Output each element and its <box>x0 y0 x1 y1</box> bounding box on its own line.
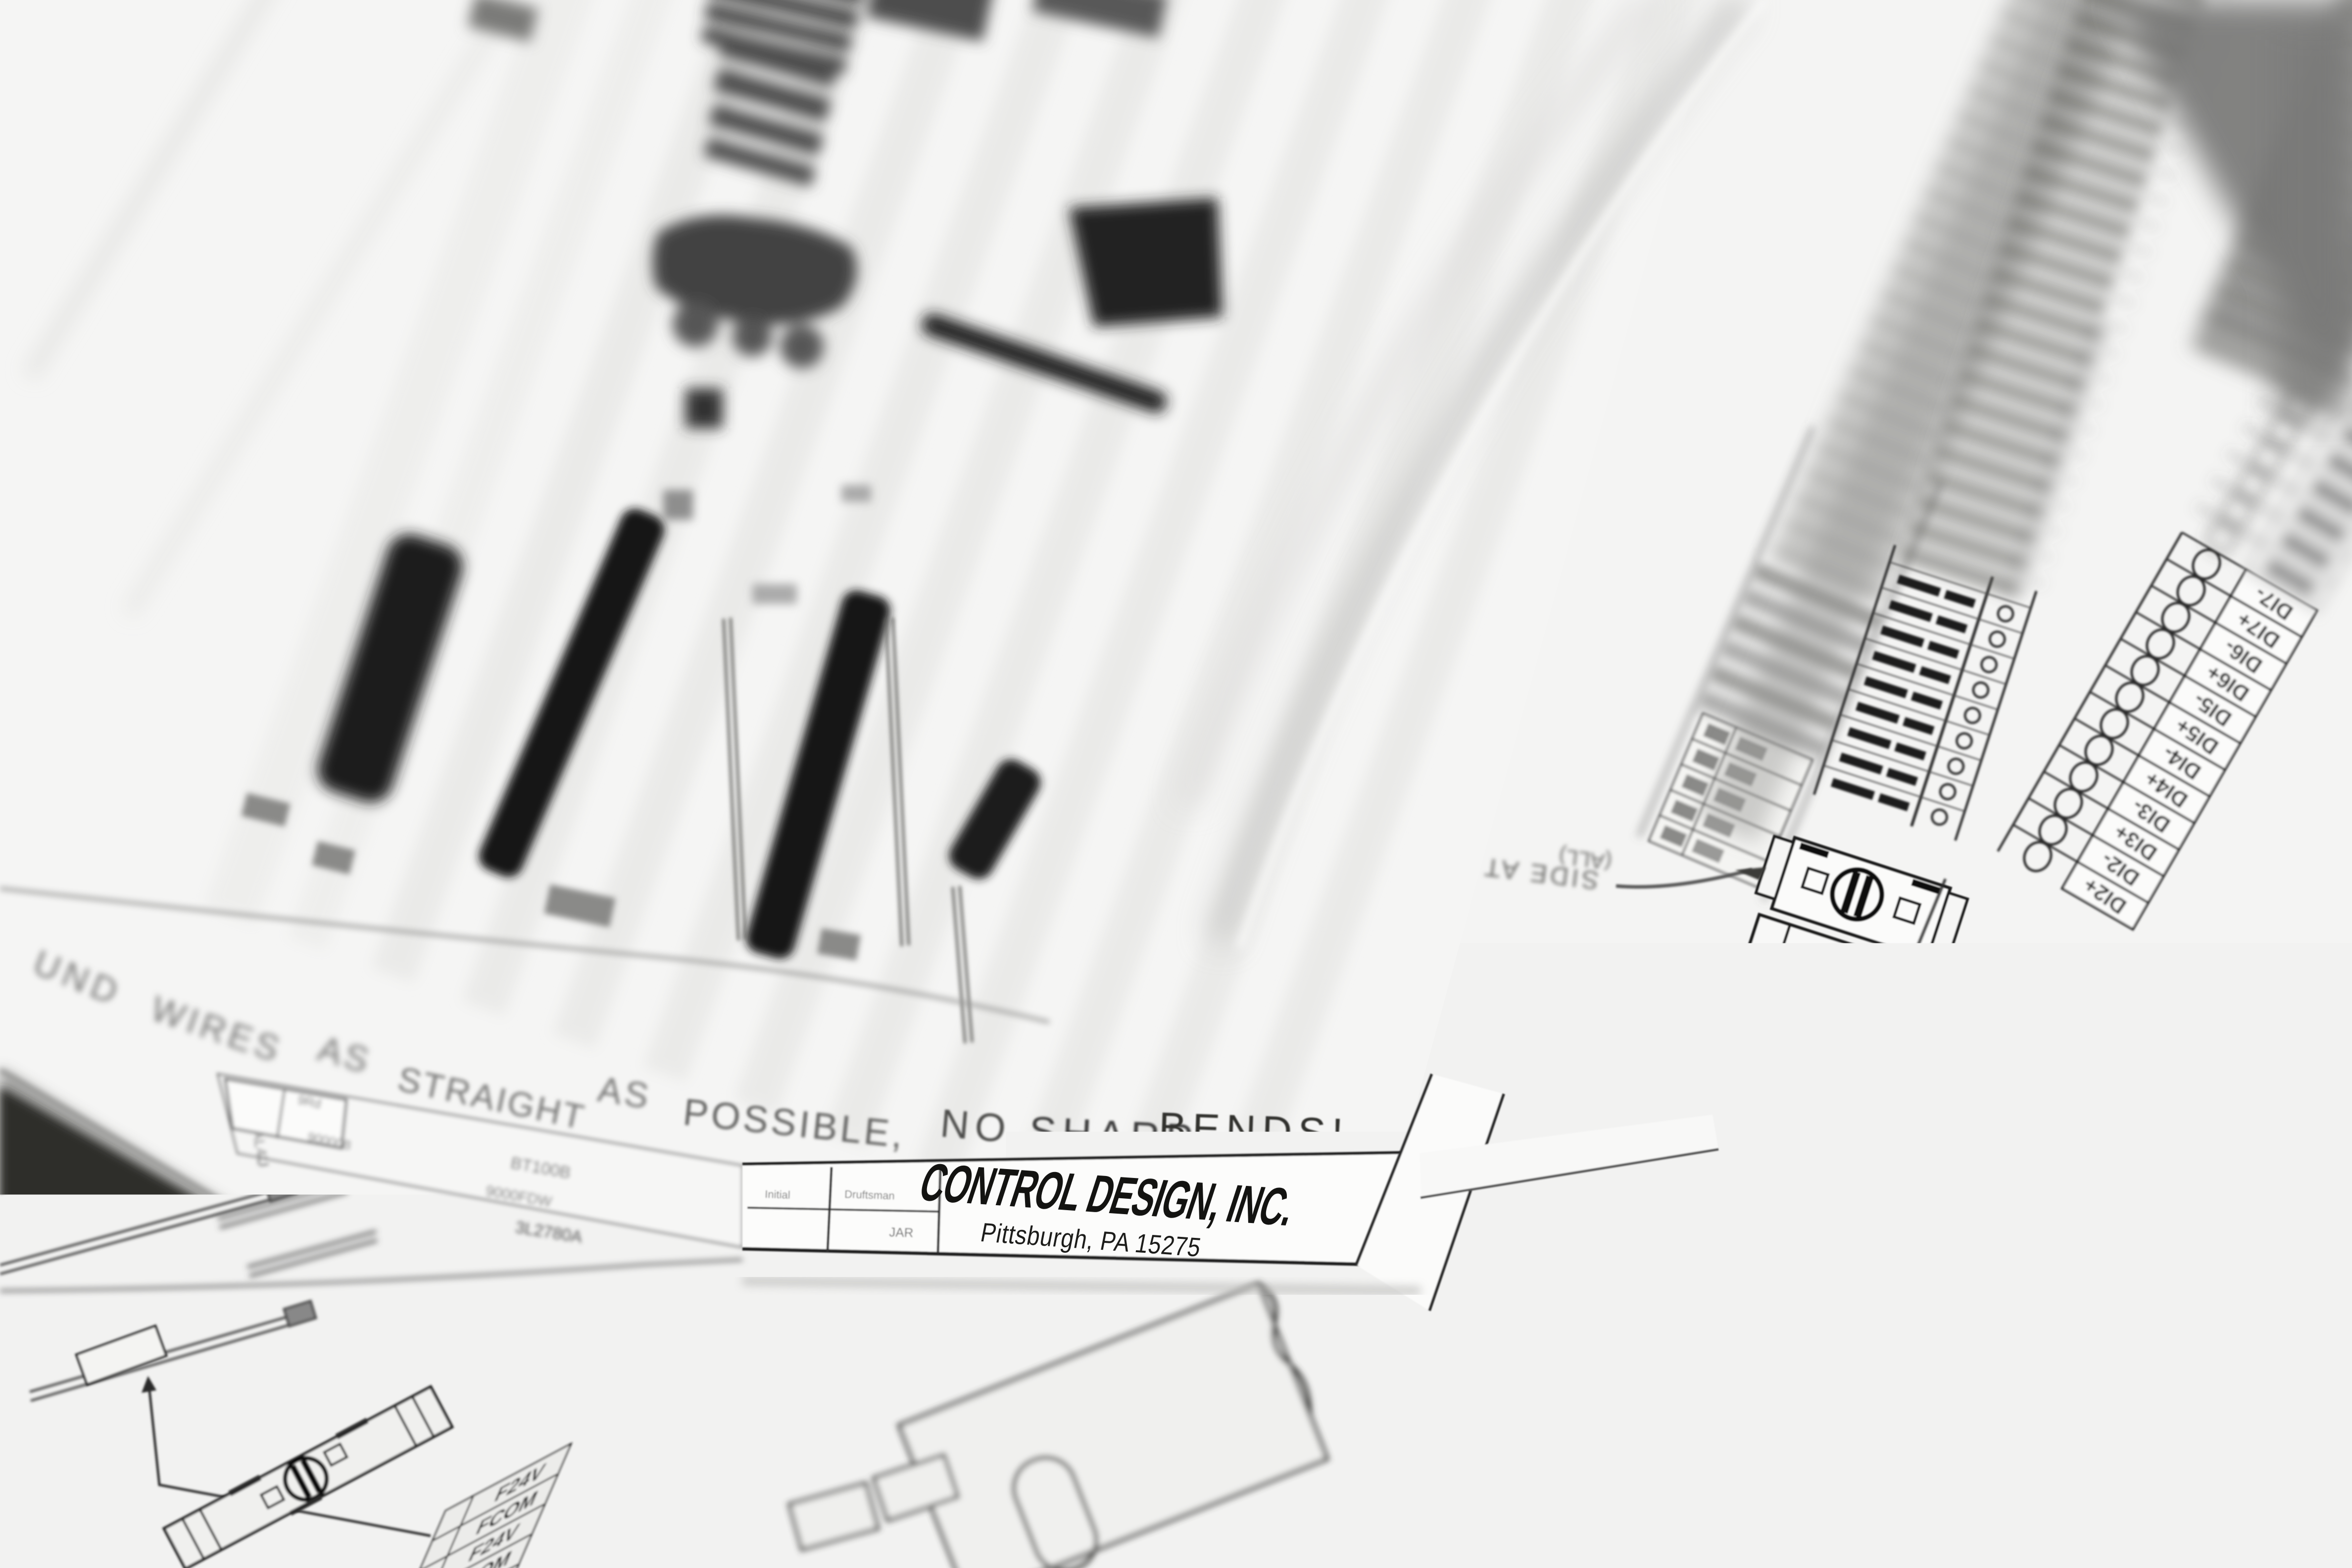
svg-text:BENDS!: BENDS! <box>1158 1104 1350 1157</box>
svg-text:NO: NO <box>939 1101 1014 1151</box>
svg-text:Druftsman: Druftsman <box>844 1188 895 1202</box>
svg-text:Initial: Initial <box>765 1188 790 1201</box>
svg-text:AS: AS <box>595 1070 654 1117</box>
svg-text:JAR: JAR <box>889 1225 914 1240</box>
